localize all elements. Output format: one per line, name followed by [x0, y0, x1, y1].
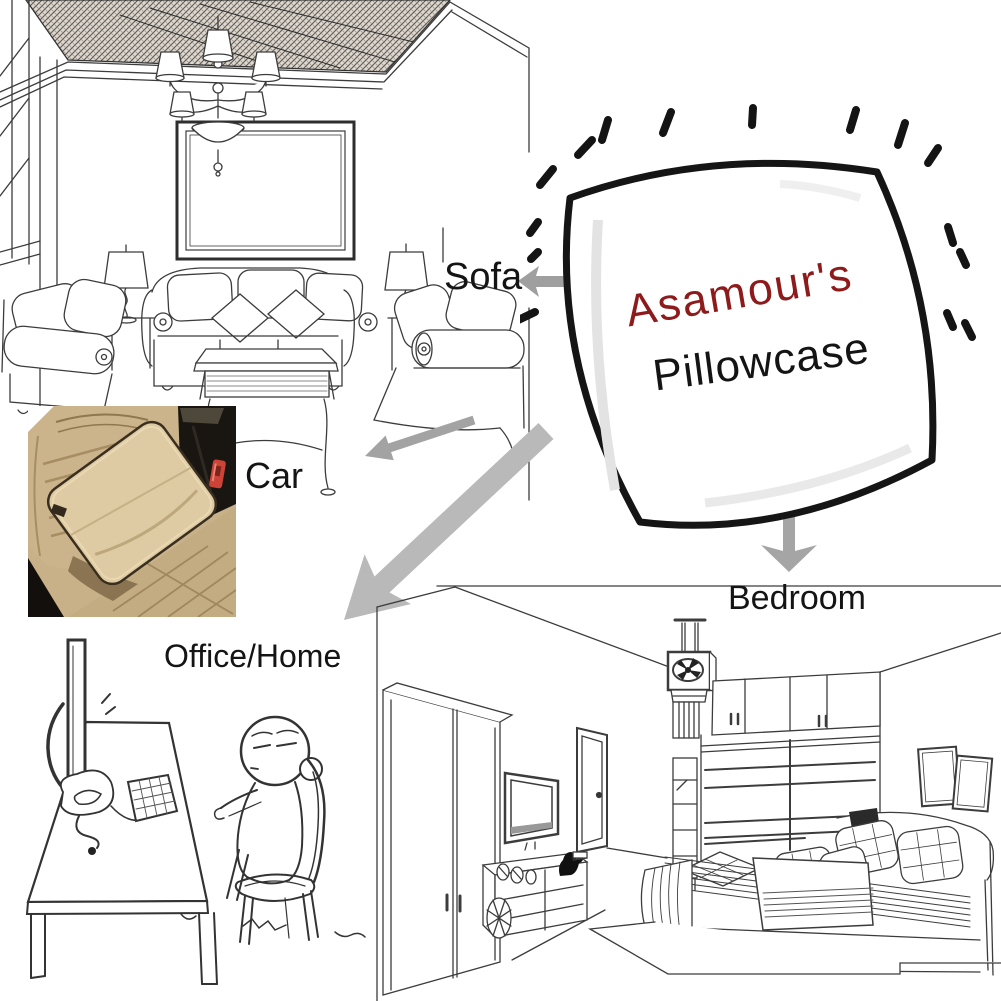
picture-frames: [918, 747, 992, 812]
office-home-label: Office/Home: [164, 640, 341, 672]
pillowcase-usage-infographic: Asamour's Pillowcase Sofa Car Office/Hom…: [0, 0, 1001, 1001]
arrow-to-car: [365, 416, 475, 461]
wardrobe: [383, 683, 512, 995]
wall-tv: [505, 773, 558, 850]
chair: [236, 758, 325, 944]
ceiling-fan-unit: [668, 620, 716, 738]
bedroom-illustration: [375, 580, 1001, 1001]
tv-stand: [483, 852, 587, 938]
ground-squiggles: [181, 914, 365, 937]
desk: [27, 722, 217, 984]
upper-cabinets: [712, 672, 880, 735]
door: [577, 728, 607, 852]
bedroom-label: Bedroom: [728, 581, 866, 615]
white-duvet: [753, 858, 873, 930]
floor-vase: [487, 898, 511, 938]
car-label: Car: [245, 458, 303, 494]
rug: [590, 922, 1001, 974]
sofa-label: Sofa: [444, 258, 522, 296]
office-illustration: [5, 620, 405, 1001]
cartoon-person: [215, 717, 309, 900]
